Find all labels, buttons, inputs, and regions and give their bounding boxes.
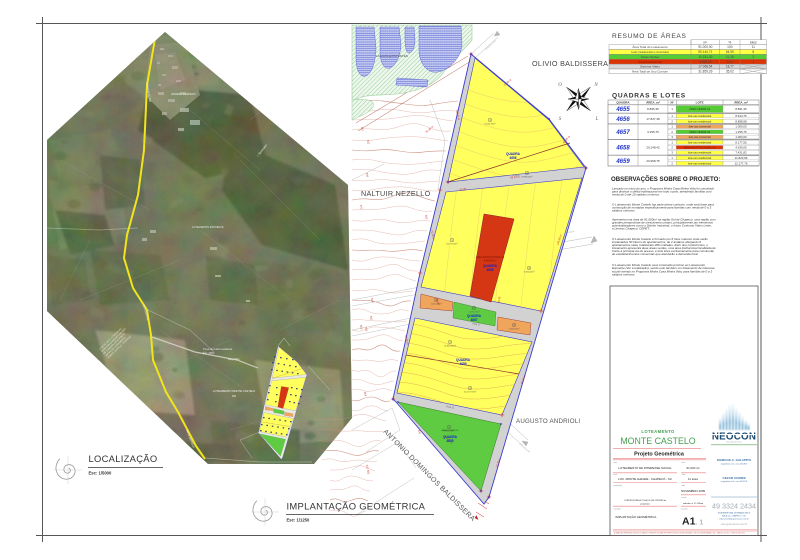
svg-text:obra: obra (614, 461, 617, 464)
svg-text:N: N (593, 83, 598, 88)
svg-text:8.891,35: 8.891,35 (735, 107, 747, 111)
svg-text:lote-uso residencial: lote-uso residencial (688, 156, 712, 160)
svg-text:ÁREA INSTITUCIONAL 01: ÁREA INSTITUCIONAL 01 (684, 146, 717, 150)
svg-text:20.248,42: 20.248,42 (646, 146, 660, 150)
svg-text:núm.: núm. (682, 474, 686, 476)
svg-text:Larg.=20m: Larg.=20m (228, 358, 240, 361)
svg-text:proprietário: proprietário (614, 484, 623, 487)
svg-text:11 lotes: 11 lotes (688, 477, 698, 481)
svg-text:indicada e h 1:1.250/mq: indicada e h 1:1.250/mq (683, 503, 703, 505)
svg-text:www.gruponeocon.com.br: www.gruponeocon.com.br (721, 523, 748, 526)
svg-text:lote-uso residencial: lote-uso residencial (688, 114, 712, 118)
svg-text:10.151,30: 10.151,30 (698, 55, 712, 59)
svg-text:CONSTRUTORA HC LTDA | 05 164 O: CONSTRUTORA HC LTDA | 05 164 OPP/0085 de (624, 499, 666, 502)
svg-text:4658: 4658 (486, 268, 493, 272)
svg-text:LOTEAMENTO MONTE CASTELO: LOTEAMENTO MONTE CASTELO (213, 389, 255, 393)
svg-text:data: data (682, 484, 685, 487)
svg-text:8.644,75m²: 8.644,75m² (484, 123, 495, 126)
svg-text:RESUMO DE ÁREAS: RESUMO DE ÁREAS (612, 31, 687, 40)
svg-text:Projeto Geométrica: Projeto Geométrica (634, 451, 685, 457)
svg-text:4659: 4659 (459, 362, 466, 366)
svg-text:O: O (558, 83, 562, 88)
svg-text:uma visão de futuro: uma visão de futuro (726, 441, 742, 444)
svg-text:8.644,75: 8.644,75 (735, 114, 747, 118)
svg-text:4657: 4657 (615, 130, 630, 136)
svg-text:12.177,76: 12.177,76 (735, 161, 748, 165)
svg-text:5,10: 5,10 (727, 60, 733, 64)
svg-text:engenheiro civil - crea 45.678: engenheiro civil - crea 45.678-9 (721, 462, 748, 465)
svg-text:AUGUSTO ANDRIOLI: AUGUSTO ANDRIOLI (516, 418, 580, 425)
svg-text:4658: 4658 (615, 146, 630, 152)
svg-text:31.859,29: 31.859,29 (698, 70, 712, 74)
svg-text:3.255,75: 3.255,75 (647, 130, 659, 134)
svg-text:2: 2 (752, 55, 754, 59)
svg-text:%: % (728, 40, 731, 44)
svg-text:NALTUIR NEZELLO: NALTUIR NEZELLO (361, 189, 431, 198)
svg-text:. 1: . 1 (696, 519, 704, 526)
svg-text:8: 8 (752, 50, 754, 54)
svg-text:17.068,54: 17.068,54 (698, 65, 712, 69)
svg-text:lote-uso comercial: lote-uso comercial (689, 135, 711, 139)
svg-text:8.177,55: 8.177,55 (735, 140, 747, 144)
svg-text:proprietário: proprietário (640, 502, 650, 505)
svg-text:Área Total do Loteamento: Área Total do Loteamento (632, 45, 668, 49)
svg-text:A1: A1 (682, 515, 696, 527)
svg-text:LAGOAS EXISTENTES: LAGOAS EXISTENTES (376, 54, 408, 58)
svg-text:área: área (682, 461, 685, 464)
svg-text:4655: 4655 (446, 439, 453, 443)
svg-text:LOTEAMENTO: LOTEAMENTO (641, 429, 675, 434)
svg-text:lote-uso residencial: lote-uso residencial (688, 119, 712, 123)
svg-text:23.998,75: 23.998,75 (646, 159, 660, 163)
svg-text:L: L (595, 117, 599, 122)
svg-text:1.000,00: 1.000,00 (735, 125, 747, 129)
svg-text:LOTEAMENTO EXPOENTE: LOTEAMENTO EXPOENTE (192, 226, 224, 229)
svg-text:RUA MARECHAL BORMANN 486 E: RUA MARECHAL BORMANN 486 E (718, 511, 751, 514)
svg-text:8.895,35: 8.895,35 (647, 107, 659, 111)
svg-text:QUADRAS E LOTES: QUADRAS E LOTES (612, 93, 686, 100)
svg-text:4657: 4657 (470, 318, 477, 322)
svg-text:8.898,58: 8.898,58 (735, 119, 747, 123)
svg-text:lote-uso residencial: lote-uso residencial (688, 161, 712, 165)
svg-text:4656: 4656 (615, 117, 630, 123)
svg-text:ÁREA VERDE 01: ÁREA VERDE 01 (441, 429, 459, 432)
svg-text:IMPLANTAÇÃO GEOMÉTRICA: IMPLANTAÇÃO GEOMÉTRICA (616, 514, 657, 519)
svg-text:NOVEMBRO 2009: NOVEMBRO 2009 (681, 489, 705, 493)
svg-text:18,77: 18,77 (726, 65, 734, 69)
svg-text:4655: 4655 (615, 107, 630, 113)
svg-text:SALA 14 - CHAPECÓ - SC: SALA 14 - CHAPECÓ - SC (722, 514, 747, 517)
svg-text:1: 1 (752, 60, 754, 64)
svg-text:91.000 m²: 91.000 m² (686, 466, 699, 470)
svg-text:1.255,75: 1.255,75 (735, 130, 747, 134)
svg-text:Rua A: Rua A (512, 173, 520, 178)
svg-text:4656: 4656 (509, 156, 516, 160)
svg-text:salários mínimos.: salários mínimos. (612, 208, 636, 212)
svg-text:Área Institucional: Área Institucional (638, 60, 662, 64)
svg-text:renda de 0 até 10 salários mín: renda de 0 até 10 salários mínimos. (612, 192, 660, 196)
svg-text:MONTE CASTELO: MONTE CASTELO (620, 436, 695, 446)
svg-text:LOC. MONTE ALEGRE - CHAPECÓ -: LOC. MONTE ALEGRE - CHAPECÓ - SC (618, 476, 672, 481)
svg-text:lote-uso residencial: lote-uso residencial (688, 140, 712, 144)
svg-text:escala: escala (682, 497, 687, 499)
svg-text:64,99: 64,99 (726, 50, 734, 54)
svg-text:lotes: lotes (750, 40, 757, 44)
svg-text:LOCALIZAÇÃO: LOCALIZAÇÃO (89, 453, 158, 464)
svg-text:Área Total de Uso Comum: Área Total de Uso Comum (632, 70, 669, 74)
svg-text:1.000,00: 1.000,00 (735, 135, 747, 139)
svg-text:LOTE: LOTE (696, 101, 704, 105)
svg-text:a Unoesc Chapecó, CEPET...: a Unoesc Chapecó, CEPET... (612, 227, 652, 231)
svg-text:conteúdo: conteúdo (614, 508, 621, 511)
svg-text:OBSERVAÇÕES SOBRE O PROJETO:: OBSERVAÇÕES SOBRE O PROJETO: (611, 176, 720, 183)
svg-text:IMPLANTAÇÃO GEOMÉTRICA: IMPLANTAÇÃO GEOMÉTRICA (287, 501, 426, 512)
svg-text:Esc: 1/5000: Esc: 1/5000 (89, 471, 112, 476)
svg-text:11,15: 11,15 (726, 55, 734, 59)
svg-text:100: 100 (727, 45, 733, 49)
svg-text:1.255,75m²: 1.255,75m² (468, 311, 479, 314)
svg-text:Sistema Viário: Sistema Viário (640, 65, 660, 69)
svg-text:35,02: 35,02 (726, 70, 734, 74)
svg-text:lote-uso residencial: lote-uso residencial (688, 151, 712, 155)
svg-text:urbanismo@gruponeocon.com.br: urbanismo@gruponeocon.com.br (719, 518, 749, 520)
svg-text:8.177,55m²: 8.177,55m² (446, 243, 457, 246)
svg-text:12.177,76m²: 12.177,76m² (464, 391, 477, 394)
svg-text:35,00: 35,00 (459, 187, 466, 192)
svg-text:59.140,71: 59.140,71 (698, 50, 712, 54)
svg-text:MARCOS A. GALUPPO: MARCOS A. GALUPPO (717, 458, 751, 462)
svg-text:CEZAR CIARINI: CEZAR CIARINI (722, 476, 745, 480)
svg-text:4659: 4659 (615, 159, 630, 165)
svg-text:11.820,99m²: 11.820,99m² (444, 345, 456, 348)
svg-text:local: local (614, 474, 618, 476)
svg-text:11.820,99: 11.820,99 (735, 156, 748, 160)
svg-text:m²: m² (703, 40, 707, 44)
svg-text:LOTEAMENTO DE INTERESSE SOCIAL: LOTEAMENTO DE INTERESSE SOCIAL (618, 466, 672, 470)
svg-text:1.000,00m²: 1.000,00m² (508, 328, 519, 331)
svg-text:4.639,05: 4.639,05 (699, 60, 712, 64)
svg-text:engenheiro civil - crea 34.567: engenheiro civil - crea 34.567-8 (721, 480, 748, 483)
svg-text:ÁREA VERDE 01: ÁREA VERDE 01 (689, 107, 710, 111)
svg-text:8.898,58m²: 8.898,58m² (521, 176, 532, 179)
svg-text:7.431,82m²: 7.431,82m² (523, 271, 534, 274)
svg-text:QUADRA: QUADRA (616, 101, 630, 105)
svg-text:Trevo de retorno existente: Trevo de retorno existente (203, 348, 233, 351)
svg-text:ÁREA_m²: ÁREA_m² (734, 100, 748, 105)
svg-text:1.000,00m²: 1.000,00m² (430, 303, 441, 306)
svg-text:ÁREA VERDE 02: ÁREA VERDE 02 (689, 130, 710, 134)
svg-text:de estabelecimentos comerciais: de estabelecimentos comerciais que atend… (612, 252, 699, 256)
svg-text:Lotes (residenciais e comercia: Lotes (residenciais e comerciais) (631, 50, 669, 54)
svg-text:OLIVIO BALDISSERA: OLIVIO BALDISSERA (532, 59, 608, 68)
svg-text:17.847,38: 17.847,38 (646, 117, 660, 121)
svg-text:11: 11 (752, 45, 756, 49)
svg-text:4.639,05: 4.639,05 (735, 146, 747, 150)
svg-text:7.431,82: 7.431,82 (735, 151, 747, 155)
svg-text:Esc: 1/1250: Esc: 1/1250 (287, 518, 310, 523)
svg-text:49 3324 2434: 49 3324 2434 (712, 502, 756, 511)
svg-text:lote-uso comercial: lote-uso comercial (689, 125, 711, 129)
svg-text:4.639,05 m²: 4.639,05 m² (484, 260, 497, 263)
svg-text:91.000,00: 91.000,00 (698, 45, 712, 49)
svg-text:Áreas Verdes: Áreas Verdes (641, 55, 660, 59)
svg-text:salários mínimos.: salários mínimos. (612, 272, 636, 276)
svg-text:prancha: prancha (682, 508, 688, 511)
svg-text:Esc: 1/500: Esc: 1/500 (203, 352, 215, 355)
svg-text:ÁREA_m²: ÁREA_m² (646, 100, 660, 105)
